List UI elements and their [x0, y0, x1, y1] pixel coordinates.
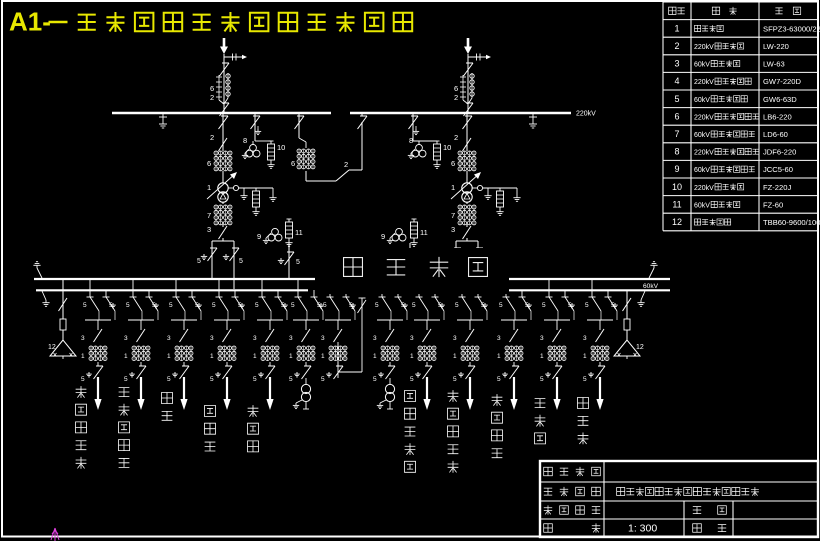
- svg-text:220kV: 220kV: [694, 185, 714, 192]
- svg-text:8: 8: [243, 136, 247, 145]
- svg-text:5: 5: [323, 302, 327, 309]
- svg-text:5: 5: [321, 376, 325, 383]
- svg-text:5: 5: [253, 376, 257, 383]
- svg-text:1: 1: [373, 353, 377, 360]
- svg-text:60kV: 60kV: [694, 202, 710, 209]
- svg-text:1: 1: [210, 353, 214, 360]
- svg-text:3: 3: [253, 335, 257, 342]
- svg-text:6: 6: [454, 84, 458, 93]
- svg-text:60kV: 60kV: [694, 62, 710, 69]
- svg-text:3: 3: [167, 335, 171, 342]
- svg-text:3: 3: [674, 59, 679, 69]
- svg-text:220kV: 220kV: [694, 150, 714, 157]
- svg-text:8: 8: [674, 147, 679, 157]
- svg-text:7: 7: [674, 129, 679, 139]
- svg-text:3: 3: [81, 335, 85, 342]
- svg-text:5: 5: [542, 302, 546, 309]
- svg-text:10: 10: [672, 182, 682, 192]
- svg-text:LB6-220: LB6-220: [763, 112, 792, 121]
- svg-text:GW6-63D: GW6-63D: [763, 95, 797, 104]
- svg-text:1: 300: 1: 300: [628, 523, 657, 535]
- svg-text:6: 6: [291, 159, 295, 168]
- svg-text:5: 5: [289, 376, 293, 383]
- svg-text:11: 11: [672, 199, 681, 209]
- svg-text:5: 5: [124, 376, 128, 383]
- svg-text:3: 3: [321, 335, 325, 342]
- svg-text:1: 1: [321, 353, 325, 360]
- svg-text:6: 6: [674, 111, 679, 121]
- svg-text:5: 5: [197, 258, 201, 265]
- svg-text:5: 5: [410, 376, 414, 383]
- svg-text:5: 5: [296, 259, 300, 266]
- svg-text:FZ-220J: FZ-220J: [763, 183, 791, 192]
- svg-text:3: 3: [124, 335, 128, 342]
- svg-text:FZ-60: FZ-60: [763, 200, 783, 209]
- svg-text:5: 5: [373, 376, 377, 383]
- svg-text:10: 10: [277, 143, 285, 152]
- svg-text:GW7-220D: GW7-220D: [763, 77, 801, 86]
- svg-text:9: 9: [674, 164, 679, 174]
- svg-text:1: 1: [583, 353, 587, 360]
- svg-text:12: 12: [48, 344, 56, 351]
- svg-text:9: 9: [257, 232, 261, 241]
- svg-text:2: 2: [674, 41, 679, 51]
- svg-text:5: 5: [167, 376, 171, 383]
- svg-text:1: 1: [540, 353, 544, 360]
- svg-text:1: 1: [81, 353, 85, 360]
- svg-text:60kV: 60kV: [643, 283, 659, 290]
- svg-text:60kV: 60kV: [694, 97, 710, 104]
- svg-text:5: 5: [212, 302, 216, 309]
- svg-text:5: 5: [169, 302, 173, 309]
- svg-text:1: 1: [289, 353, 293, 360]
- svg-text:60kV: 60kV: [694, 132, 710, 139]
- svg-text:SFPZ3-63000/220: SFPZ3-63000/220: [763, 24, 820, 33]
- svg-text:5: 5: [583, 376, 587, 383]
- svg-text:2: 2: [210, 133, 214, 142]
- svg-text:3: 3: [289, 335, 293, 342]
- svg-text:8: 8: [409, 136, 413, 145]
- svg-text:JCC5-60: JCC5-60: [763, 165, 793, 174]
- svg-text:1: 1: [167, 353, 171, 360]
- svg-text:5: 5: [126, 302, 130, 309]
- svg-text:1: 1: [207, 183, 211, 192]
- svg-text:3: 3: [210, 335, 214, 342]
- svg-text:1: 1: [451, 183, 455, 192]
- svg-text:3: 3: [583, 335, 587, 342]
- svg-text:JDF6-220: JDF6-220: [763, 148, 796, 157]
- svg-text:5: 5: [674, 94, 679, 104]
- svg-text:6: 6: [451, 159, 455, 168]
- svg-text:12: 12: [672, 217, 682, 227]
- svg-text:LW-63: LW-63: [763, 60, 785, 69]
- svg-text:5: 5: [412, 302, 416, 309]
- svg-text:220kV: 220kV: [694, 114, 714, 121]
- svg-text:10: 10: [443, 143, 451, 152]
- svg-text:1: 1: [124, 353, 128, 360]
- svg-text:5: 5: [81, 376, 85, 383]
- svg-text:5: 5: [499, 302, 503, 309]
- svg-text:5: 5: [255, 302, 259, 309]
- svg-text:6: 6: [207, 159, 211, 168]
- svg-text:220kV: 220kV: [694, 79, 714, 86]
- svg-text:11: 11: [420, 228, 428, 237]
- svg-text:5: 5: [83, 302, 87, 309]
- svg-text:5: 5: [497, 376, 501, 383]
- svg-text:220kV: 220kV: [694, 44, 714, 51]
- svg-text:2: 2: [454, 93, 458, 102]
- svg-text:1: 1: [253, 353, 257, 360]
- svg-text:3: 3: [410, 335, 414, 342]
- svg-text:6: 6: [210, 84, 214, 93]
- svg-text:1: 1: [497, 353, 501, 360]
- svg-text:60kV: 60kV: [694, 167, 710, 174]
- svg-text:3: 3: [373, 335, 377, 342]
- svg-text:5: 5: [375, 302, 379, 309]
- svg-text:5: 5: [351, 304, 355, 311]
- svg-text:4: 4: [674, 76, 679, 86]
- svg-text:2: 2: [454, 133, 458, 142]
- svg-text:11: 11: [295, 228, 303, 237]
- svg-text:LD6-60: LD6-60: [763, 130, 788, 139]
- svg-text:3: 3: [453, 335, 457, 342]
- svg-text:5: 5: [210, 376, 214, 383]
- svg-text:220kV: 220kV: [576, 111, 596, 118]
- svg-text:12: 12: [636, 344, 644, 351]
- svg-text:5: 5: [455, 302, 459, 309]
- svg-text:1: 1: [453, 353, 457, 360]
- svg-text:2: 2: [210, 93, 214, 102]
- svg-text:A1-: A1-: [9, 7, 51, 37]
- svg-text:5: 5: [585, 302, 589, 309]
- svg-text:3: 3: [451, 225, 455, 234]
- svg-text:9: 9: [381, 232, 385, 241]
- svg-text:1: 1: [674, 23, 679, 33]
- svg-text:7: 7: [451, 211, 455, 220]
- svg-text:3: 3: [540, 335, 544, 342]
- svg-text:TBB60-9600/100: TBB60-9600/100: [763, 218, 820, 227]
- svg-text:5: 5: [540, 376, 544, 383]
- svg-text:LW-220: LW-220: [763, 42, 789, 51]
- svg-text:5: 5: [291, 302, 295, 309]
- svg-text:5: 5: [453, 376, 457, 383]
- svg-text:7: 7: [207, 211, 211, 220]
- svg-text:2: 2: [344, 160, 348, 169]
- svg-text:1: 1: [410, 353, 414, 360]
- svg-text:3: 3: [207, 225, 211, 234]
- svg-text:5: 5: [239, 258, 243, 265]
- svg-text:3: 3: [497, 335, 501, 342]
